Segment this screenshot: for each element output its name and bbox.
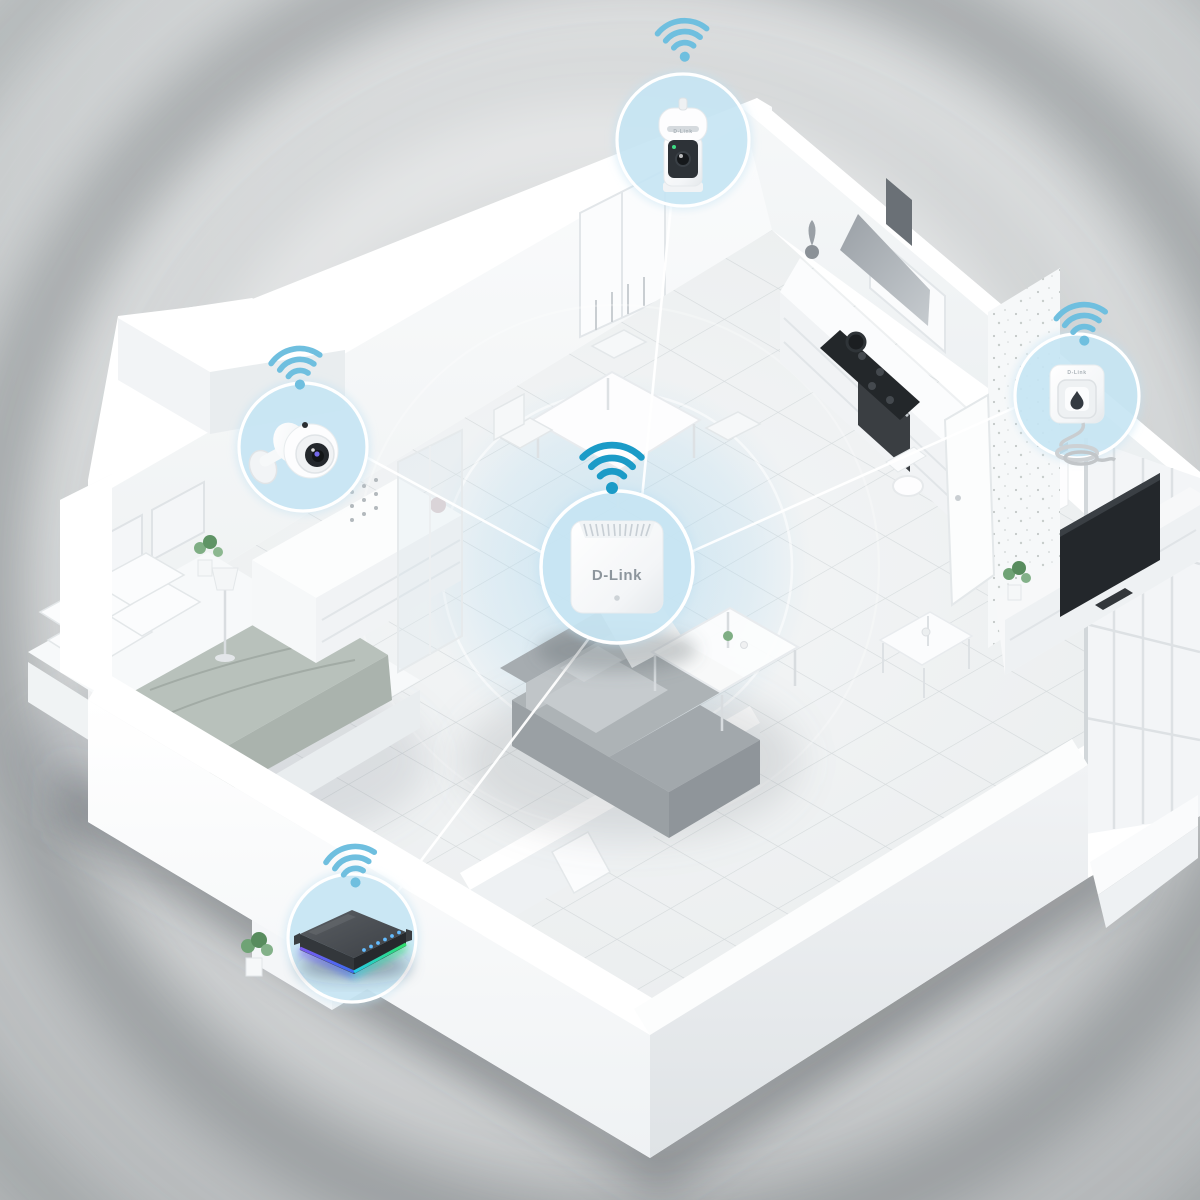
camera-brand-label: D-Link [673, 129, 692, 135]
glass-partition [398, 430, 462, 672]
sensor-brand-label: D-Link [1067, 370, 1086, 376]
camera-status-led [672, 145, 676, 149]
switch-flange-right [406, 929, 412, 942]
router-led [614, 595, 620, 601]
door-handle [955, 495, 961, 501]
router-brand-label: D-Link [592, 567, 642, 584]
camera-mic [302, 422, 308, 428]
pot [847, 333, 865, 351]
table-plant [723, 631, 733, 641]
pan-tilt-camera: D-Link [659, 98, 707, 192]
wall-left-end [60, 474, 112, 700]
mesh-router: D-Link [571, 521, 663, 613]
smart-home-illustration: D-Link D-Link [0, 0, 1200, 1200]
